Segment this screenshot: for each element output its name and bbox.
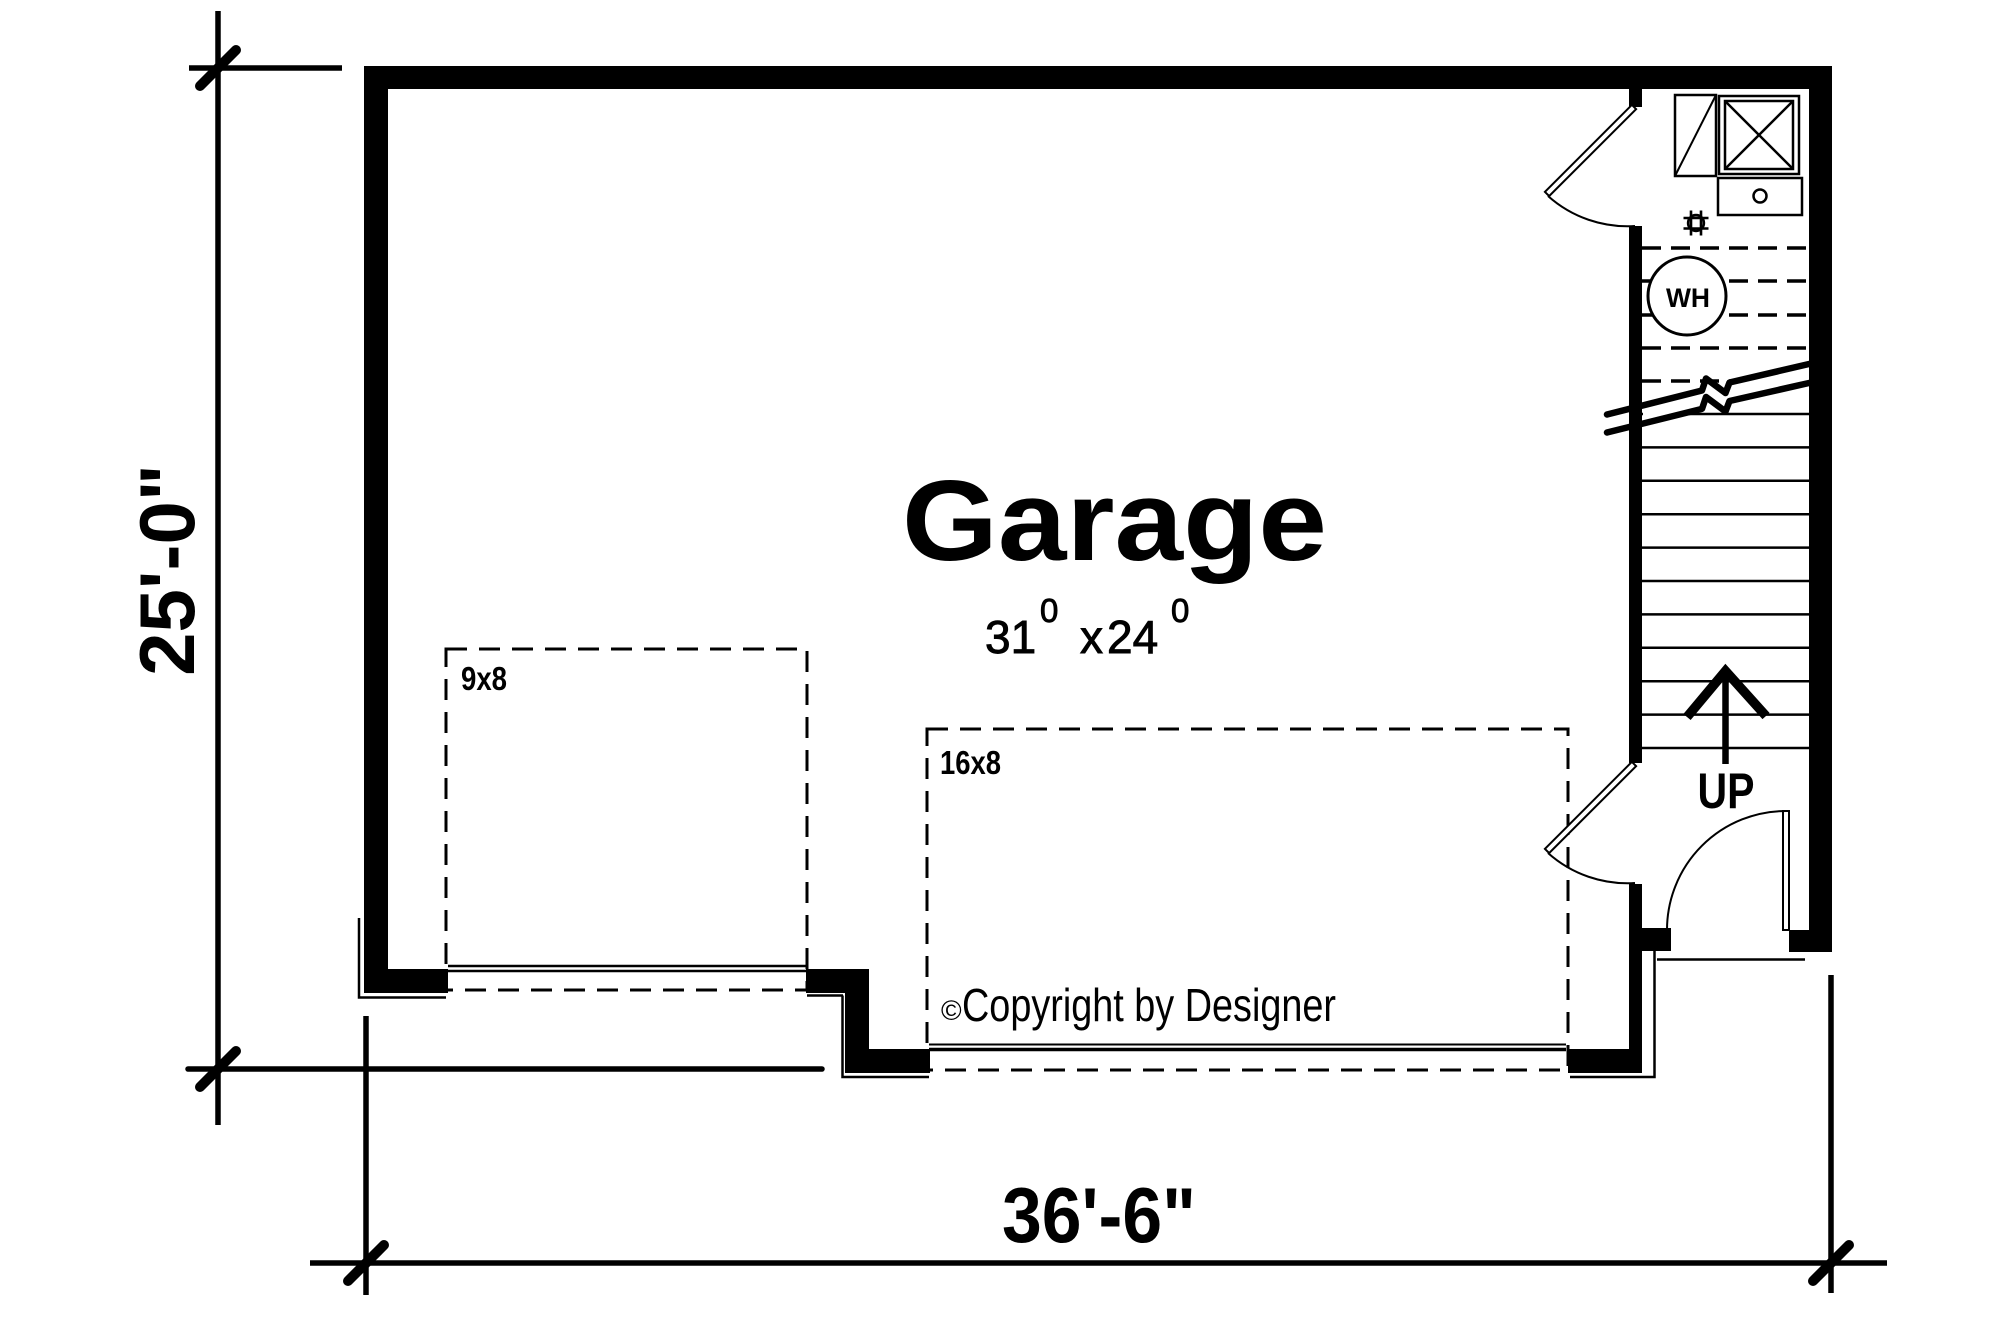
svg-text:WH: WH: [1666, 283, 1710, 313]
svg-text:Garage: Garage: [902, 458, 1327, 585]
svg-text:24: 24: [1107, 611, 1158, 663]
svg-text:9x8: 9x8: [461, 660, 507, 697]
svg-text:0: 0: [1040, 592, 1058, 629]
svg-text:36'-6": 36'-6": [1002, 1171, 1196, 1259]
svg-text:UP: UP: [1698, 763, 1755, 819]
svg-text:16x8: 16x8: [940, 744, 1001, 781]
svg-text:25'-0": 25'-0": [123, 464, 211, 676]
svg-text:x: x: [1080, 611, 1103, 663]
svg-text:Copyright by Designer: Copyright by Designer: [962, 979, 1336, 1031]
svg-text:©: ©: [941, 995, 962, 1026]
svg-text:0: 0: [1171, 592, 1189, 629]
svg-text:31: 31: [985, 611, 1036, 663]
